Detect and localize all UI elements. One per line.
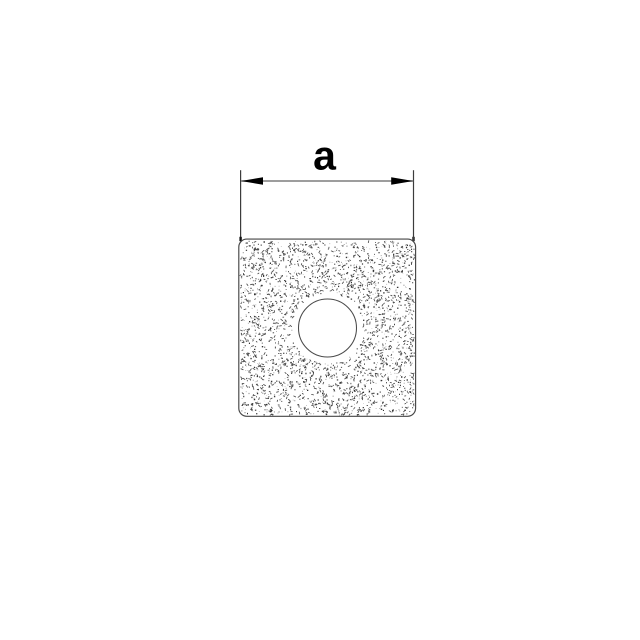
svg-text:a: a (313, 133, 337, 179)
